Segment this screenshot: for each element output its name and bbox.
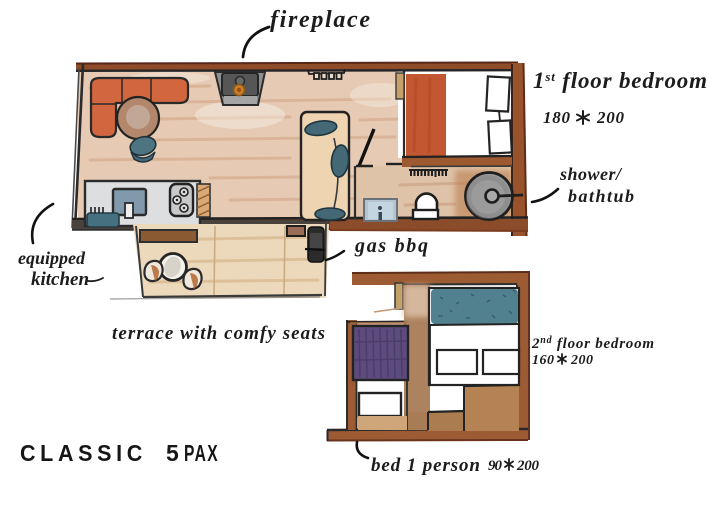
svg-text:200: 200	[570, 353, 593, 368]
svg-text:1st floor bedroom: 1st floor bedroom	[533, 68, 707, 93]
svg-text:equipped: equipped	[18, 248, 86, 268]
svg-text:CLASSIC: CLASSIC	[20, 440, 147, 466]
svg-text:200: 200	[516, 458, 540, 474]
svg-text:PAX: PAX	[184, 440, 219, 466]
svg-text:bed 1 person: bed 1 person	[371, 455, 480, 476]
svg-text:bathtub: bathtub	[568, 186, 634, 206]
svg-text:200: 200	[596, 108, 625, 127]
svg-text:160: 160	[532, 353, 554, 368]
svg-text:kitchen: kitchen	[31, 269, 89, 290]
svg-text:shower/: shower/	[559, 164, 623, 184]
svg-text:90: 90	[488, 458, 503, 474]
svg-text:5: 5	[166, 440, 179, 466]
svg-text:terrace with comfy seats: terrace with comfy seats	[112, 323, 325, 344]
svg-text:fireplace: fireplace	[270, 7, 370, 33]
svg-text:180: 180	[543, 108, 571, 127]
